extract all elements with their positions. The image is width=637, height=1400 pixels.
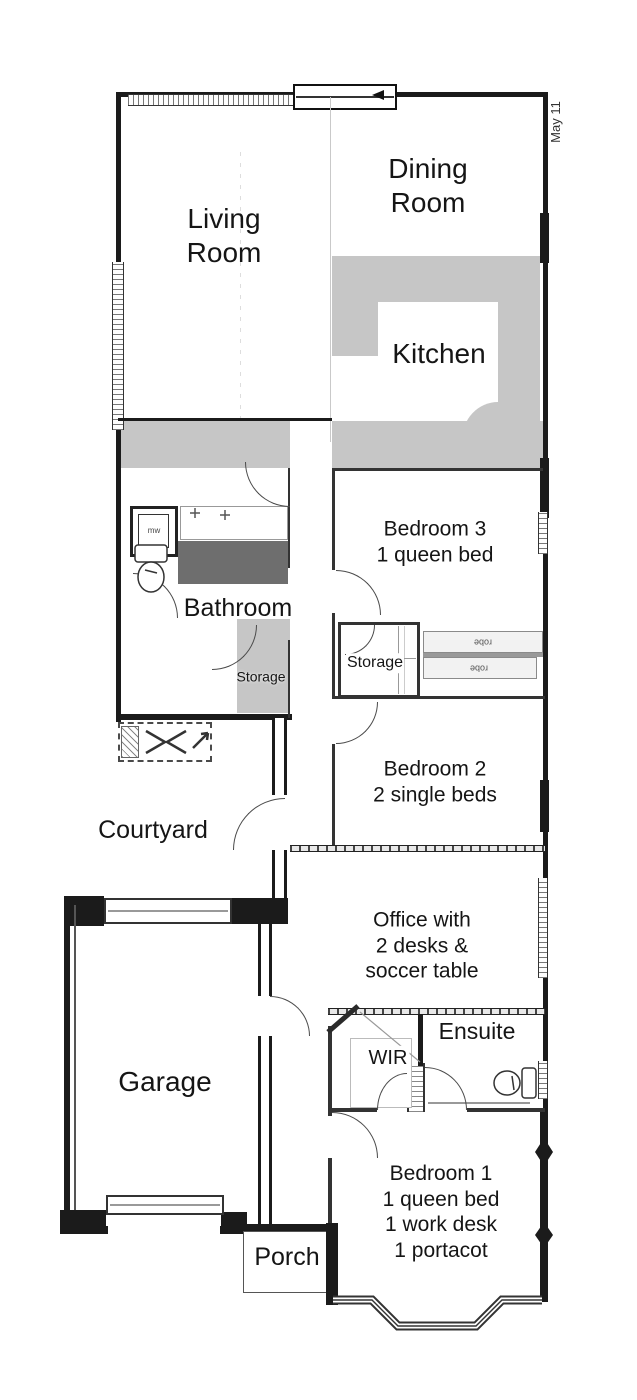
bedroom1-label: Bedroom 1 1 queen bed 1 work desk 1 port… — [383, 1161, 500, 1263]
robe-top-label: robe — [474, 637, 492, 648]
kitchen-counter-bottom — [332, 421, 545, 470]
storage-right-label: Storage — [346, 653, 404, 673]
wall-bedroom2-top — [332, 696, 545, 699]
door-bedroom3 — [336, 570, 381, 615]
wall-right-seg2 — [540, 458, 549, 518]
garage-left-wall — [64, 900, 70, 1234]
wall-bedroom1-left-b — [328, 1158, 332, 1224]
wall-bedroom3-top — [332, 468, 543, 471]
garage-door-line — [110, 1204, 220, 1206]
sliding-door-track — [296, 96, 394, 98]
wall-bedroom3-left-b — [332, 613, 335, 698]
floor-plan: Living Room Dining Room Kitchen Bathroom… — [0, 0, 637, 1400]
date-note: May 11 — [548, 101, 564, 143]
wall-bath-bottom — [116, 714, 292, 720]
wall-bedroom3-left-a — [332, 468, 335, 570]
bathroom-label: Bathroom — [184, 593, 292, 624]
garage-corner-se — [221, 1212, 247, 1232]
washing-machine-label: mw — [148, 526, 160, 536]
wall-right-seg3 — [540, 780, 549, 832]
door-bathroom — [133, 573, 178, 618]
garage-corner-nw — [64, 896, 104, 926]
living-room-label: Living Room — [187, 202, 262, 270]
wall-bedroom1-top-e — [467, 1108, 545, 1112]
wall-courtyard-east-a — [272, 718, 287, 795]
bedroom3-label: Bedroom 3 1 queen bed — [377, 516, 494, 567]
garage-left-wall-inner — [74, 905, 76, 1227]
wall-right-seg1 — [540, 213, 549, 263]
door-ensuite — [425, 1067, 467, 1110]
window-top-living — [128, 94, 294, 106]
garage-right-wall-b — [258, 1036, 272, 1226]
ensuite-toilet-icon — [494, 1068, 536, 1098]
storage-left-label: Storage — [236, 668, 285, 685]
robe-bottom-label: robe — [470, 663, 488, 674]
wall-right-bedroom1 — [540, 1112, 548, 1302]
dining-room-label: Dining Room — [388, 152, 467, 220]
garage-corner-sw — [60, 1210, 106, 1234]
wall-bedroom1-left-a — [328, 1026, 332, 1116]
garage-top-wall-east — [232, 898, 288, 924]
window-left-living — [112, 262, 124, 430]
courtyard-label: Courtyard — [98, 815, 208, 846]
porch-label: Porch — [254, 1242, 319, 1273]
kitchen-counter-fillet — [462, 402, 498, 440]
wall-hall-west-lower — [288, 640, 290, 718]
door-bedroom1 — [332, 1112, 378, 1158]
window-right-office — [538, 878, 548, 978]
bath-vanity — [180, 506, 288, 540]
window-right-ensuite — [538, 1061, 548, 1099]
ensuite-label: Ensuite — [439, 1017, 516, 1045]
window-right-bedroom3 — [538, 512, 548, 554]
door-bedroom2 — [336, 702, 378, 744]
bedroom2-label: Bedroom 2 2 single beds — [373, 756, 497, 807]
kitchen-counter-left — [332, 256, 378, 356]
line-living-dining — [330, 97, 331, 442]
porch-top-wall — [247, 1224, 332, 1231]
garage-court-window-line — [108, 910, 228, 912]
wall-bedroom1-left-chunk — [326, 1223, 338, 1305]
wir-label: WIR — [367, 1046, 410, 1070]
wall-office-bottom — [328, 1008, 545, 1015]
wall-bedroom2-left — [332, 744, 335, 848]
office-label: Office with 2 desks & soccer table — [365, 908, 478, 985]
garage-label: Garage — [118, 1065, 211, 1099]
bay-window — [333, 1300, 542, 1326]
wall-bedroom1-top-w — [332, 1108, 377, 1112]
garage-right-wall-a — [258, 924, 272, 996]
clothesline-hatch — [121, 726, 139, 758]
line-ceiling-dashed — [240, 150, 241, 420]
bathtub — [178, 541, 288, 584]
storage-right-shelf2 — [404, 626, 405, 694]
living-robe-band — [120, 421, 290, 468]
door-garage — [270, 996, 310, 1036]
line-robe-band-top — [118, 418, 332, 421]
wall-office-top — [290, 845, 545, 852]
door-courtyard — [233, 798, 285, 850]
wall-wir-ensuite-divider — [418, 1014, 423, 1066]
kitchen-label: Kitchen — [392, 337, 485, 371]
door-hall-entry — [245, 462, 290, 507]
